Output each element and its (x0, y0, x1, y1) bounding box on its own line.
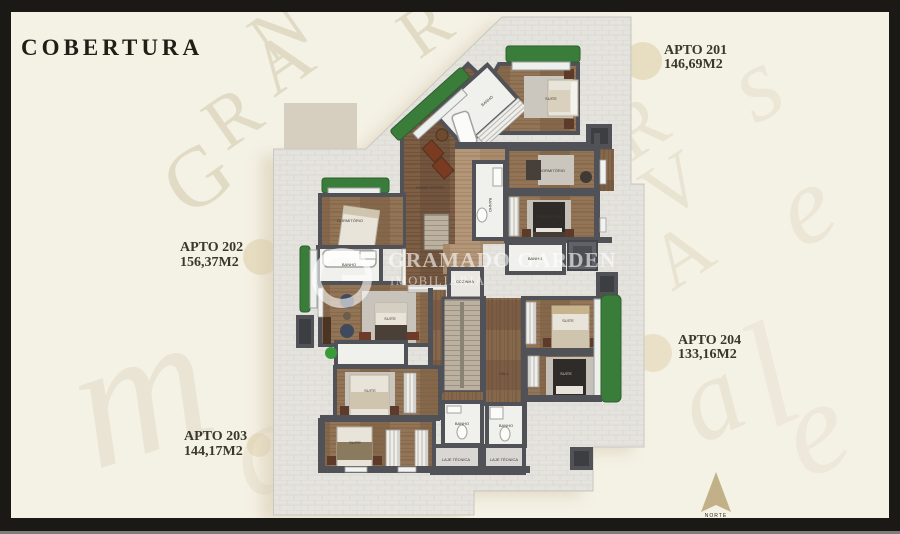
svg-text:NORTE: NORTE (705, 513, 727, 519)
svg-text:BANHO: BANHO (342, 262, 356, 267)
svg-text:HALL: HALL (499, 371, 510, 376)
svg-text:BANHO: BANHO (455, 421, 469, 426)
svg-text:HOME OFFICE: HOME OFFICE (416, 185, 444, 190)
svg-text:SUITE: SUITE (364, 388, 376, 393)
svg-text:DORMITÓRIO: DORMITÓRIO (537, 214, 563, 219)
svg-text:SUITE: SUITE (349, 440, 361, 445)
svg-text:SUITE: SUITE (545, 96, 557, 101)
svg-text:SUITE: SUITE (562, 318, 574, 323)
svg-text:GRAMADO GARDEN: GRAMADO GARDEN (388, 248, 616, 272)
svg-text:LAJE TÉCNICA: LAJE TÉCNICA (442, 457, 470, 462)
svg-text:IMOBILIÁRIA: IMOBILIÁRIA (390, 274, 486, 288)
svg-text:SUITE: SUITE (560, 371, 572, 376)
svg-text:LAJE TÉCNICA: LAJE TÉCNICA (490, 457, 518, 462)
svg-text:DORMITÓRIO: DORMITÓRIO (539, 168, 565, 173)
svg-text:SUITE: SUITE (384, 316, 396, 321)
svg-text:BANHO: BANHO (499, 423, 513, 428)
svg-text:DORMITÓRIO: DORMITÓRIO (337, 218, 363, 223)
svg-text:BANHO: BANHO (488, 198, 493, 212)
